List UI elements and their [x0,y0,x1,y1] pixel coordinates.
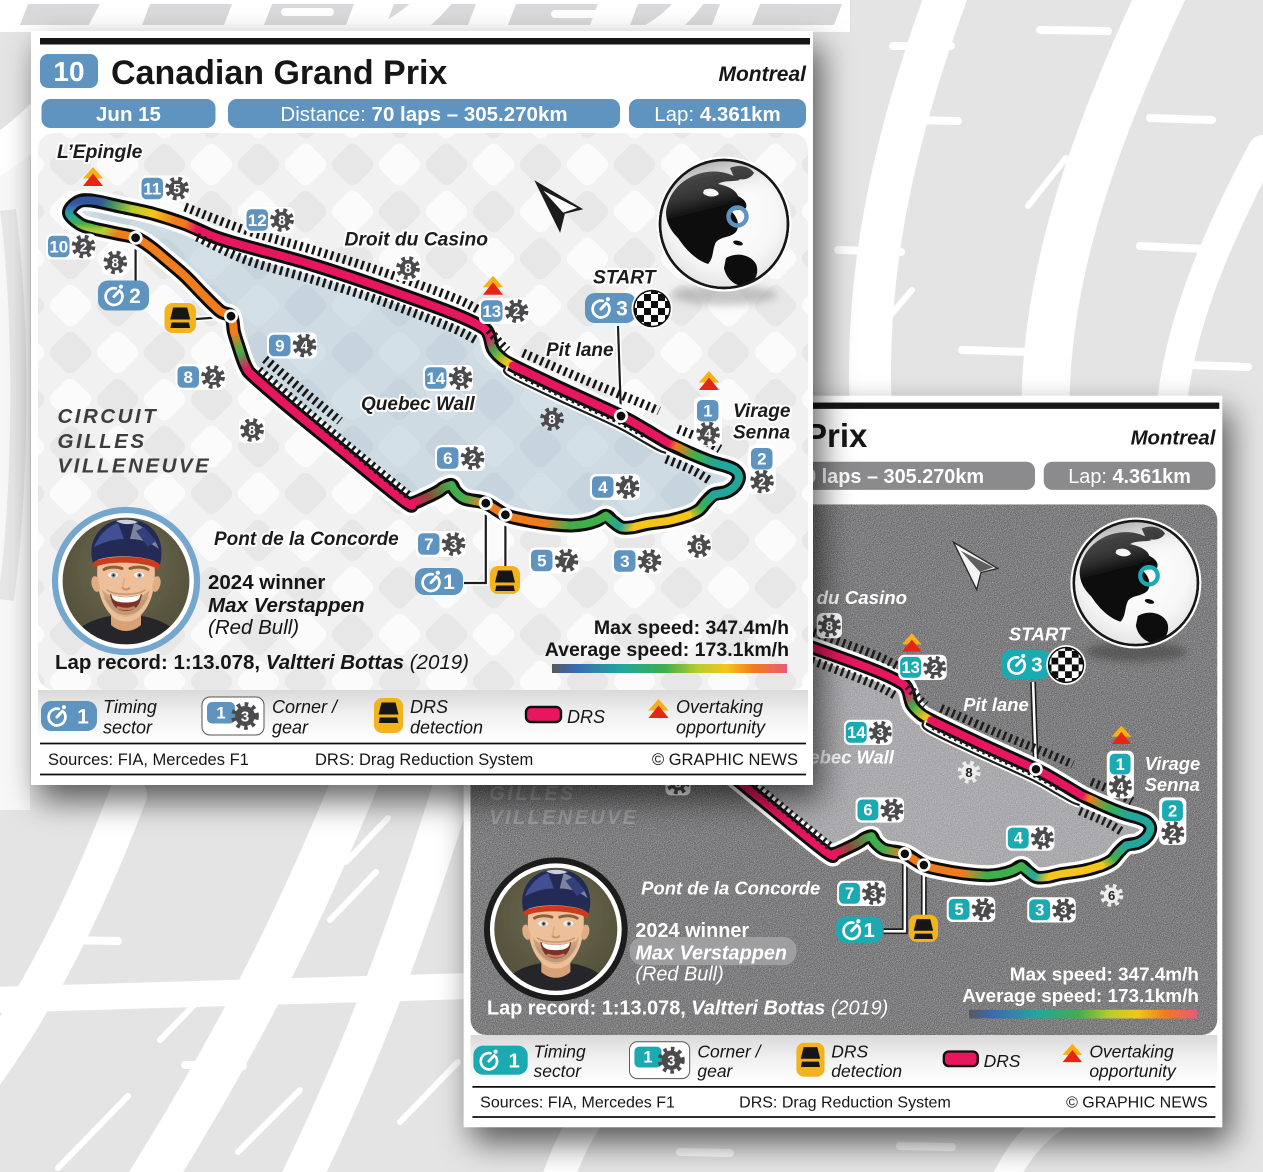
svg-text:opportunity: opportunity [676,718,766,738]
svg-text:7: 7 [563,553,571,568]
svg-text:14: 14 [847,724,866,742]
svg-text:Sources: FIA, Mercedes F1: Sources: FIA, Mercedes F1 [480,1095,675,1112]
svg-text:1: 1 [863,920,874,942]
svg-text:Average speed: 173.1km/h: Average speed: 173.1km/h [962,986,1199,1007]
svg-text:Pont de la Concorde: Pont de la Concorde [214,529,399,550]
svg-text:2: 2 [888,803,895,818]
svg-text:8: 8 [548,412,556,427]
svg-text:Overtaking: Overtaking [1089,1041,1174,1061]
svg-text:Max Verstappen: Max Verstappen [208,594,364,617]
svg-text:Lap: 4.361km: Lap: 4.361km [654,103,781,126]
svg-text:DRS: Drag Reduction System: DRS: Drag Reduction System [739,1095,951,1112]
svg-text:2: 2 [758,474,766,489]
svg-text:Pit lane: Pit lane [546,340,614,361]
svg-text:Senna: Senna [1145,774,1200,795]
svg-text:Lap: 4.361km: Lap: 4.361km [1068,466,1191,488]
svg-text:Average speed: 173.1km/h: Average speed: 173.1km/h [545,639,789,661]
svg-text:4: 4 [301,338,309,353]
svg-text:11: 11 [143,179,161,198]
svg-text:sector: sector [534,1061,583,1081]
svg-text:8: 8 [248,423,256,438]
svg-text:3: 3 [1031,655,1042,677]
svg-text:Timing: Timing [534,1041,587,1061]
svg-text:1: 1 [703,402,712,421]
svg-text:Droit du Casino: Droit du Casino [345,230,489,251]
svg-text:4: 4 [624,480,632,495]
svg-text:8: 8 [826,618,833,633]
svg-text:START: START [593,268,658,289]
svg-text:Max Verstappen: Max Verstappen [635,942,787,964]
svg-text:Lap record: 1:13.078, Valtteri: Lap record: 1:13.078, Valtteri Bottas (2… [55,651,469,674]
svg-text:1: 1 [443,571,455,594]
svg-text:Distance: 70 laps – 305.270km: Distance: 70 laps – 305.270km [280,103,567,126]
svg-text:3: 3 [450,537,458,552]
svg-text:(Red Bull): (Red Bull) [208,616,299,639]
svg-text:DRS: Drag Reduction System: DRS: Drag Reduction System [315,751,533,769]
svg-text:13: 13 [482,302,501,321]
svg-text:2: 2 [513,304,521,319]
svg-text:Jun 15: Jun 15 [96,103,161,126]
svg-text:1: 1 [216,704,225,723]
svg-text:3: 3 [1035,901,1044,919]
svg-text:Pont de la Concorde: Pont de la Concorde [641,877,820,898]
svg-text:detection: detection [410,718,483,738]
svg-text:1: 1 [1116,756,1125,774]
svg-text:Montreal: Montreal [718,63,807,86]
svg-text:6: 6 [1108,888,1115,903]
svg-text:8: 8 [278,213,286,228]
svg-text:3: 3 [646,554,654,569]
svg-text:Sources: FIA, Mercedes F1: Sources: FIA, Mercedes F1 [48,751,249,769]
svg-text:3: 3 [870,886,877,901]
svg-text:3: 3 [1060,903,1067,918]
svg-text:© GRAPHIC NEWS: © GRAPHIC NEWS [1066,1095,1208,1112]
svg-text:Overtaking: Overtaking [676,697,763,717]
svg-text:2024 winner: 2024 winner [208,571,325,594]
svg-text:8: 8 [965,765,972,780]
svg-text:3: 3 [877,725,884,740]
svg-text:2: 2 [129,285,141,308]
svg-text:VILLENEUVE: VILLENEUVE [58,455,212,478]
svg-text:gear: gear [697,1061,733,1081]
svg-text:13: 13 [901,659,919,677]
svg-text:Canadian Grand Prix: Canadian Grand Prix [111,54,447,92]
svg-text:(Red Bull): (Red Bull) [635,964,723,986]
svg-text:2: 2 [931,660,938,675]
svg-text:1: 1 [77,706,89,729]
svg-text:5: 5 [955,901,964,919]
svg-text:Corner /: Corner / [697,1041,762,1061]
svg-text:4: 4 [704,426,712,441]
svg-text:8: 8 [183,368,192,387]
svg-text:5: 5 [173,181,181,196]
svg-text:2: 2 [1168,802,1177,820]
svg-text:DRS: DRS [410,697,448,717]
svg-text:Pit lane: Pit lane [963,694,1029,715]
svg-text:8: 8 [112,255,120,270]
svg-text:Montreal: Montreal [1131,427,1216,449]
svg-text:© GRAPHIC NEWS: © GRAPHIC NEWS [652,751,798,769]
svg-text:10: 10 [49,237,68,256]
svg-text:8: 8 [404,261,412,276]
svg-text:7: 7 [424,535,433,554]
svg-text:10: 10 [53,56,84,87]
svg-text:9: 9 [275,336,284,355]
svg-text:Max speed: 347.4m/h: Max speed: 347.4m/h [1010,965,1199,986]
svg-text:3: 3 [457,371,465,386]
svg-text:6: 6 [863,802,872,820]
svg-text:2024 winner: 2024 winner [635,920,749,942]
svg-text:Timing: Timing [103,697,157,717]
svg-text:gear: gear [272,718,309,738]
svg-text:1: 1 [643,1049,652,1067]
svg-text:12: 12 [248,211,267,230]
svg-text:DRS: DRS [831,1041,868,1061]
svg-text:2: 2 [80,239,88,254]
svg-text:L’Epingle: L’Epingle [57,142,143,163]
svg-text:detection: detection [831,1061,902,1081]
svg-text:Max speed: 347.4m/h: Max speed: 347.4m/h [594,617,789,639]
svg-text:3: 3 [667,1053,675,1069]
svg-text:2: 2 [1169,826,1176,841]
svg-text:DRS: DRS [567,707,605,727]
svg-text:Virage: Virage [733,401,791,422]
svg-text:3: 3 [241,708,249,725]
svg-text:6: 6 [695,539,703,554]
svg-text:VILLENEUVE: VILLENEUVE [489,807,638,829]
svg-text:4: 4 [1117,779,1125,794]
svg-text:6: 6 [443,449,452,468]
svg-text:Virage: Virage [1145,753,1201,774]
svg-text:3: 3 [620,552,629,571]
svg-text:CIRCUIT: CIRCUIT [58,405,159,428]
svg-text:4: 4 [598,478,608,497]
svg-text:1: 1 [508,1050,519,1072]
svg-text:7: 7 [979,902,986,917]
svg-text:Corner /: Corner / [272,697,339,717]
svg-text:2: 2 [469,451,477,466]
svg-text:4: 4 [1039,831,1047,846]
svg-text:Lap record: 1:13.078, Valtteri: Lap record: 1:13.078, Valtteri Bottas (2… [487,998,888,1020]
svg-text:Quebec Wall: Quebec Wall [361,394,475,415]
svg-text:14: 14 [426,369,445,388]
svg-text:GILLES: GILLES [58,430,147,453]
svg-text:5: 5 [537,551,546,570]
svg-text:Senna: Senna [733,423,790,444]
svg-text:DRS: DRS [984,1051,1021,1071]
svg-text:2: 2 [757,450,766,469]
svg-text:7: 7 [845,885,854,903]
svg-text:4: 4 [1014,830,1024,848]
svg-text:2: 2 [209,370,217,385]
svg-text:3: 3 [616,298,628,321]
svg-text:GILLES: GILLES [489,783,575,805]
svg-text:opportunity: opportunity [1089,1061,1177,1081]
svg-text:START: START [1009,624,1071,645]
svg-text:sector: sector [103,718,153,738]
